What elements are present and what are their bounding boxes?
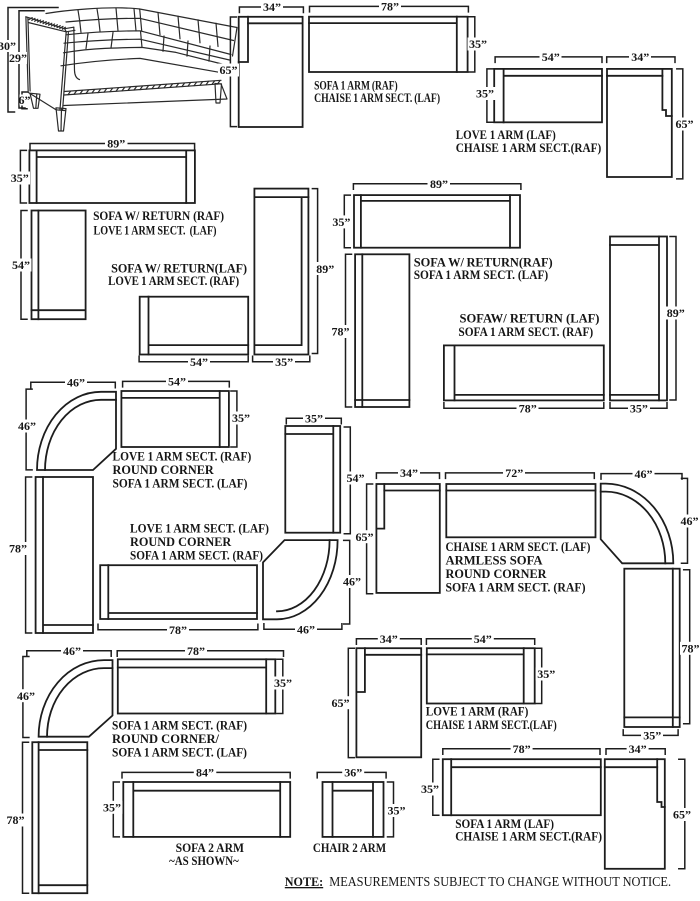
- svg-text:CHAISE 1 ARM SECT. (LAF): CHAISE 1 ARM SECT. (LAF): [314, 90, 440, 105]
- svg-text:54”: 54”: [12, 258, 30, 272]
- svg-text:54”: 54”: [190, 355, 208, 369]
- svg-text:36”: 36”: [344, 766, 362, 780]
- svg-text:35”: 35”: [476, 87, 494, 101]
- svg-text:78”: 78”: [513, 742, 531, 756]
- svg-text:65”: 65”: [673, 808, 691, 822]
- svg-text:35”: 35”: [643, 729, 661, 743]
- svg-text:65”: 65”: [332, 696, 350, 710]
- svg-text:NOTE:: NOTE:: [285, 874, 323, 889]
- svg-text:SOFA 1 ARM SECT. (RAF): SOFA 1 ARM SECT. (RAF): [458, 324, 593, 339]
- svg-text:54”: 54”: [168, 375, 186, 389]
- svg-text:89”: 89”: [430, 177, 448, 191]
- svg-text:78”: 78”: [9, 542, 27, 556]
- svg-text:SOFA 1 ARM SECT. (RAF): SOFA 1 ARM SECT. (RAF): [446, 580, 586, 595]
- svg-text:78”: 78”: [187, 644, 205, 658]
- svg-text:29”: 29”: [9, 51, 27, 65]
- svg-text:46”: 46”: [67, 375, 85, 389]
- svg-text:89”: 89”: [316, 262, 334, 276]
- svg-text:46”: 46”: [63, 644, 81, 658]
- svg-text:65”: 65”: [676, 117, 694, 131]
- svg-text:65”: 65”: [220, 63, 238, 77]
- svg-text:78”: 78”: [169, 623, 187, 637]
- svg-text:35”: 35”: [232, 411, 250, 425]
- svg-text:35”: 35”: [275, 355, 293, 369]
- svg-text:54”: 54”: [347, 471, 365, 485]
- svg-text:MEASUREMENTS SUBJECT TO CHANGE: MEASUREMENTS SUBJECT TO CHANGE WITHOUT N…: [329, 874, 671, 889]
- svg-text:34”: 34”: [380, 632, 398, 646]
- svg-text:34”: 34”: [631, 50, 649, 64]
- svg-text:54”: 54”: [474, 632, 492, 646]
- svg-text:SOFA 1 ARM SECT. (LAF): SOFA 1 ARM SECT. (LAF): [113, 476, 248, 491]
- svg-text:78”: 78”: [519, 402, 537, 416]
- svg-text:CHAISE 1 ARM SECT.(RAF): CHAISE 1 ARM SECT.(RAF): [456, 140, 601, 155]
- svg-text:CHAIR 2 ARM: CHAIR 2 ARM: [313, 840, 386, 855]
- svg-text:78”: 78”: [682, 642, 700, 656]
- svg-text:89”: 89”: [667, 306, 685, 320]
- svg-text:~AS SHOWN~: ~AS SHOWN~: [169, 853, 239, 868]
- svg-text:34”: 34”: [263, 0, 281, 14]
- svg-text:54”: 54”: [542, 50, 560, 64]
- svg-text:LOVE 1 ARM SECT. (RAF): LOVE 1 ARM SECT. (RAF): [108, 273, 239, 288]
- svg-text:35”: 35”: [421, 782, 439, 796]
- svg-text:72”: 72”: [505, 466, 523, 480]
- svg-text:CHAISE 1 ARM SECT.(RAF): CHAISE 1 ARM SECT.(RAF): [455, 829, 602, 844]
- svg-text:46”: 46”: [17, 689, 35, 703]
- svg-text:35”: 35”: [469, 37, 487, 51]
- svg-text:35”: 35”: [274, 676, 292, 690]
- svg-text:LOVE 1 ARM SECT. (LAF): LOVE 1 ARM SECT. (LAF): [94, 223, 217, 238]
- svg-text:35”: 35”: [305, 412, 323, 426]
- svg-text:89”: 89”: [107, 137, 125, 151]
- svg-text:46”: 46”: [297, 623, 315, 637]
- svg-text:6”: 6”: [19, 93, 31, 107]
- svg-text:SOFA 1 ARM SECT. (RAF): SOFA 1 ARM SECT. (RAF): [130, 548, 263, 563]
- svg-text:35”: 35”: [630, 402, 648, 416]
- svg-text:65”: 65”: [356, 530, 374, 544]
- svg-text:SOFA W/ RETURN (RAF): SOFA W/ RETURN (RAF): [93, 208, 224, 223]
- svg-text:SOFA 1 ARM SECT. (LAF): SOFA 1 ARM SECT. (LAF): [112, 745, 247, 760]
- svg-text:78”: 78”: [7, 813, 25, 827]
- svg-text:35”: 35”: [388, 804, 406, 818]
- svg-text:CHAISE 1 ARM SECT.(LAF): CHAISE 1 ARM SECT.(LAF): [426, 717, 557, 732]
- svg-text:46”: 46”: [343, 575, 361, 589]
- svg-text:35”: 35”: [537, 667, 555, 681]
- svg-text:46”: 46”: [18, 419, 36, 433]
- svg-text:35”: 35”: [332, 215, 350, 229]
- svg-text:78”: 78”: [381, 0, 399, 14]
- svg-text:35”: 35”: [103, 801, 121, 815]
- svg-text:84”: 84”: [196, 766, 214, 780]
- svg-text:46”: 46”: [681, 514, 699, 528]
- svg-text:34”: 34”: [400, 466, 418, 480]
- svg-text:35”: 35”: [11, 171, 29, 185]
- svg-text:78”: 78”: [332, 325, 350, 339]
- svg-text:46”: 46”: [635, 467, 653, 481]
- svg-text:SOFA 1 ARM SECT. (LAF): SOFA 1 ARM SECT. (LAF): [414, 267, 549, 282]
- svg-text:34”: 34”: [629, 742, 647, 756]
